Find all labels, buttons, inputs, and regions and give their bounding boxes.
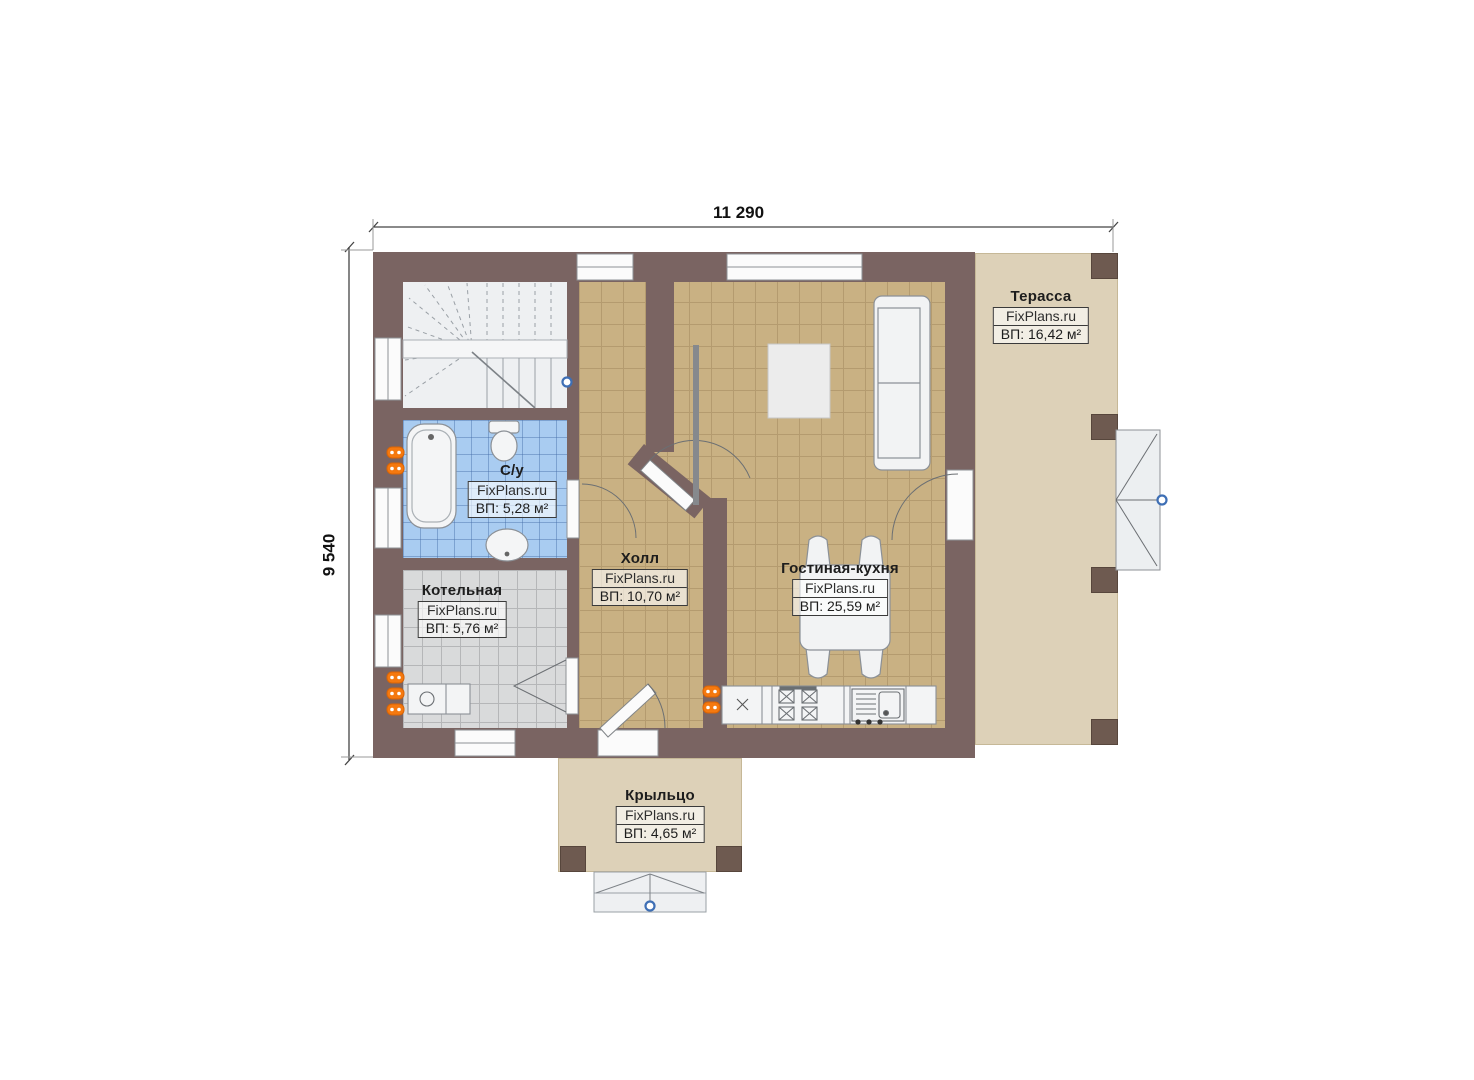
hall-living-floor xyxy=(579,280,945,728)
wall-bottom xyxy=(373,728,975,758)
room-area: ВП: 10,70 м² xyxy=(593,588,687,605)
marker-icon xyxy=(1158,496,1167,505)
room-label-living: Гостиная-кухня FixPlans.ru ВП: 25,59 м² xyxy=(781,560,899,616)
watermark: FixPlans.ru xyxy=(469,482,556,500)
terrace-post xyxy=(1091,414,1118,440)
room-label-bathroom: С/у FixPlans.ru ВП: 5,28 м² xyxy=(468,462,557,518)
dimension-height: 9 540 xyxy=(319,534,339,577)
room-title: Котельная xyxy=(418,582,507,599)
watermark: FixPlans.ru xyxy=(994,308,1088,326)
room-title: Гостиная-кухня xyxy=(781,560,899,577)
room-area: ВП: 16,42 м² xyxy=(994,326,1088,343)
room-title: С/у xyxy=(468,462,557,479)
wall-top xyxy=(373,252,975,282)
room-label-hall: Холл FixPlans.ru ВП: 10,70 м² xyxy=(592,550,688,606)
stairs-floor xyxy=(403,280,567,408)
wall-hall-living-upper xyxy=(646,280,674,452)
wall-stairs-bathroom xyxy=(403,408,579,420)
terrace-post xyxy=(1091,719,1118,745)
room-title: Крыльцо xyxy=(616,787,705,804)
watermark: FixPlans.ru xyxy=(617,807,704,825)
terrace-window xyxy=(1116,430,1160,570)
watermark: FixPlans.ru xyxy=(593,570,687,588)
room-title: Холл xyxy=(592,550,688,567)
watermark: FixPlans.ru xyxy=(793,580,887,598)
wall-bathroom-boiler xyxy=(403,558,579,570)
room-title: Терасса xyxy=(993,288,1089,305)
wall-right xyxy=(945,252,975,758)
watermark: FixPlans.ru xyxy=(419,602,506,620)
porch-steps xyxy=(594,872,706,912)
room-label-boiler: Котельная FixPlans.ru ВП: 5,76 м² xyxy=(418,582,507,638)
terrace-post xyxy=(1091,567,1118,593)
room-area: ВП: 25,59 м² xyxy=(793,598,887,615)
wall-hall-living-lower xyxy=(703,498,727,728)
room-area: ВП: 5,28 м² xyxy=(469,500,556,517)
porch-post xyxy=(716,846,742,872)
room-label-terrace: Терасса FixPlans.ru ВП: 16,42 м² xyxy=(993,288,1089,344)
room-area: ВП: 5,76 м² xyxy=(419,620,506,637)
terrace-post xyxy=(1091,253,1118,279)
room-label-porch: Крыльцо FixPlans.ru ВП: 4,65 м² xyxy=(616,787,705,843)
wall-left xyxy=(373,252,403,758)
wall-inner-vertical xyxy=(567,280,579,728)
room-area: ВП: 4,65 м² xyxy=(617,825,704,842)
marker-icon xyxy=(646,902,655,911)
floor-plan: 11 290 9 540 Терасса FixPlans.ru ВП: 16,… xyxy=(0,0,1474,1080)
porch-post xyxy=(560,846,586,872)
dimension-width: 11 290 xyxy=(713,203,764,223)
